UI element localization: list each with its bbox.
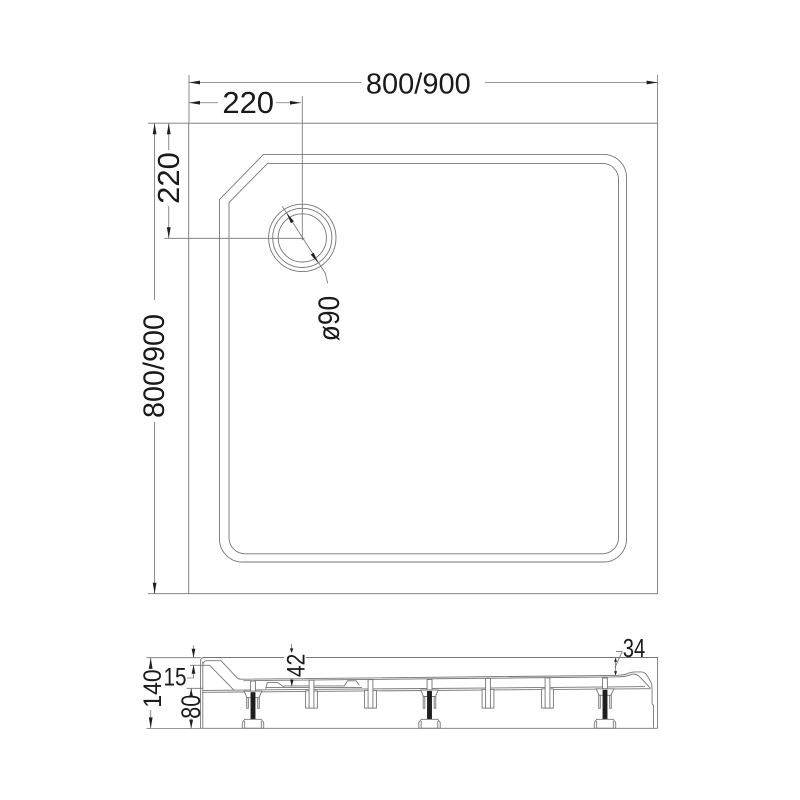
svg-text:ø90: ø90	[313, 296, 346, 342]
svg-text:800/900: 800/900	[138, 314, 171, 418]
svg-text:34: 34	[623, 633, 646, 663]
svg-text:42: 42	[282, 654, 310, 677]
svg-text:220: 220	[151, 152, 186, 204]
svg-text:220: 220	[222, 85, 274, 120]
svg-text:80: 80	[176, 695, 206, 719]
svg-text:800/900: 800/900	[366, 69, 471, 101]
svg-text:15: 15	[164, 664, 187, 692]
